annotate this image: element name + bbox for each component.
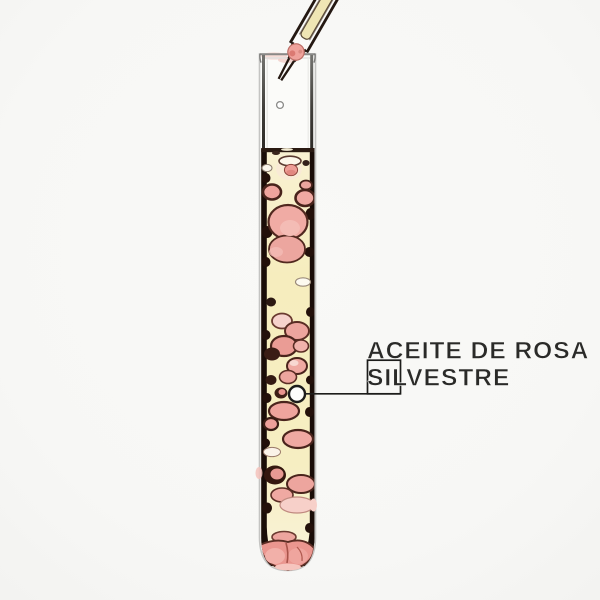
svg-text:SILVESTRE: SILVESTRE bbox=[367, 365, 510, 392]
svg-text:ACEITE DE ROSA: ACEITE DE ROSA bbox=[367, 338, 589, 365]
